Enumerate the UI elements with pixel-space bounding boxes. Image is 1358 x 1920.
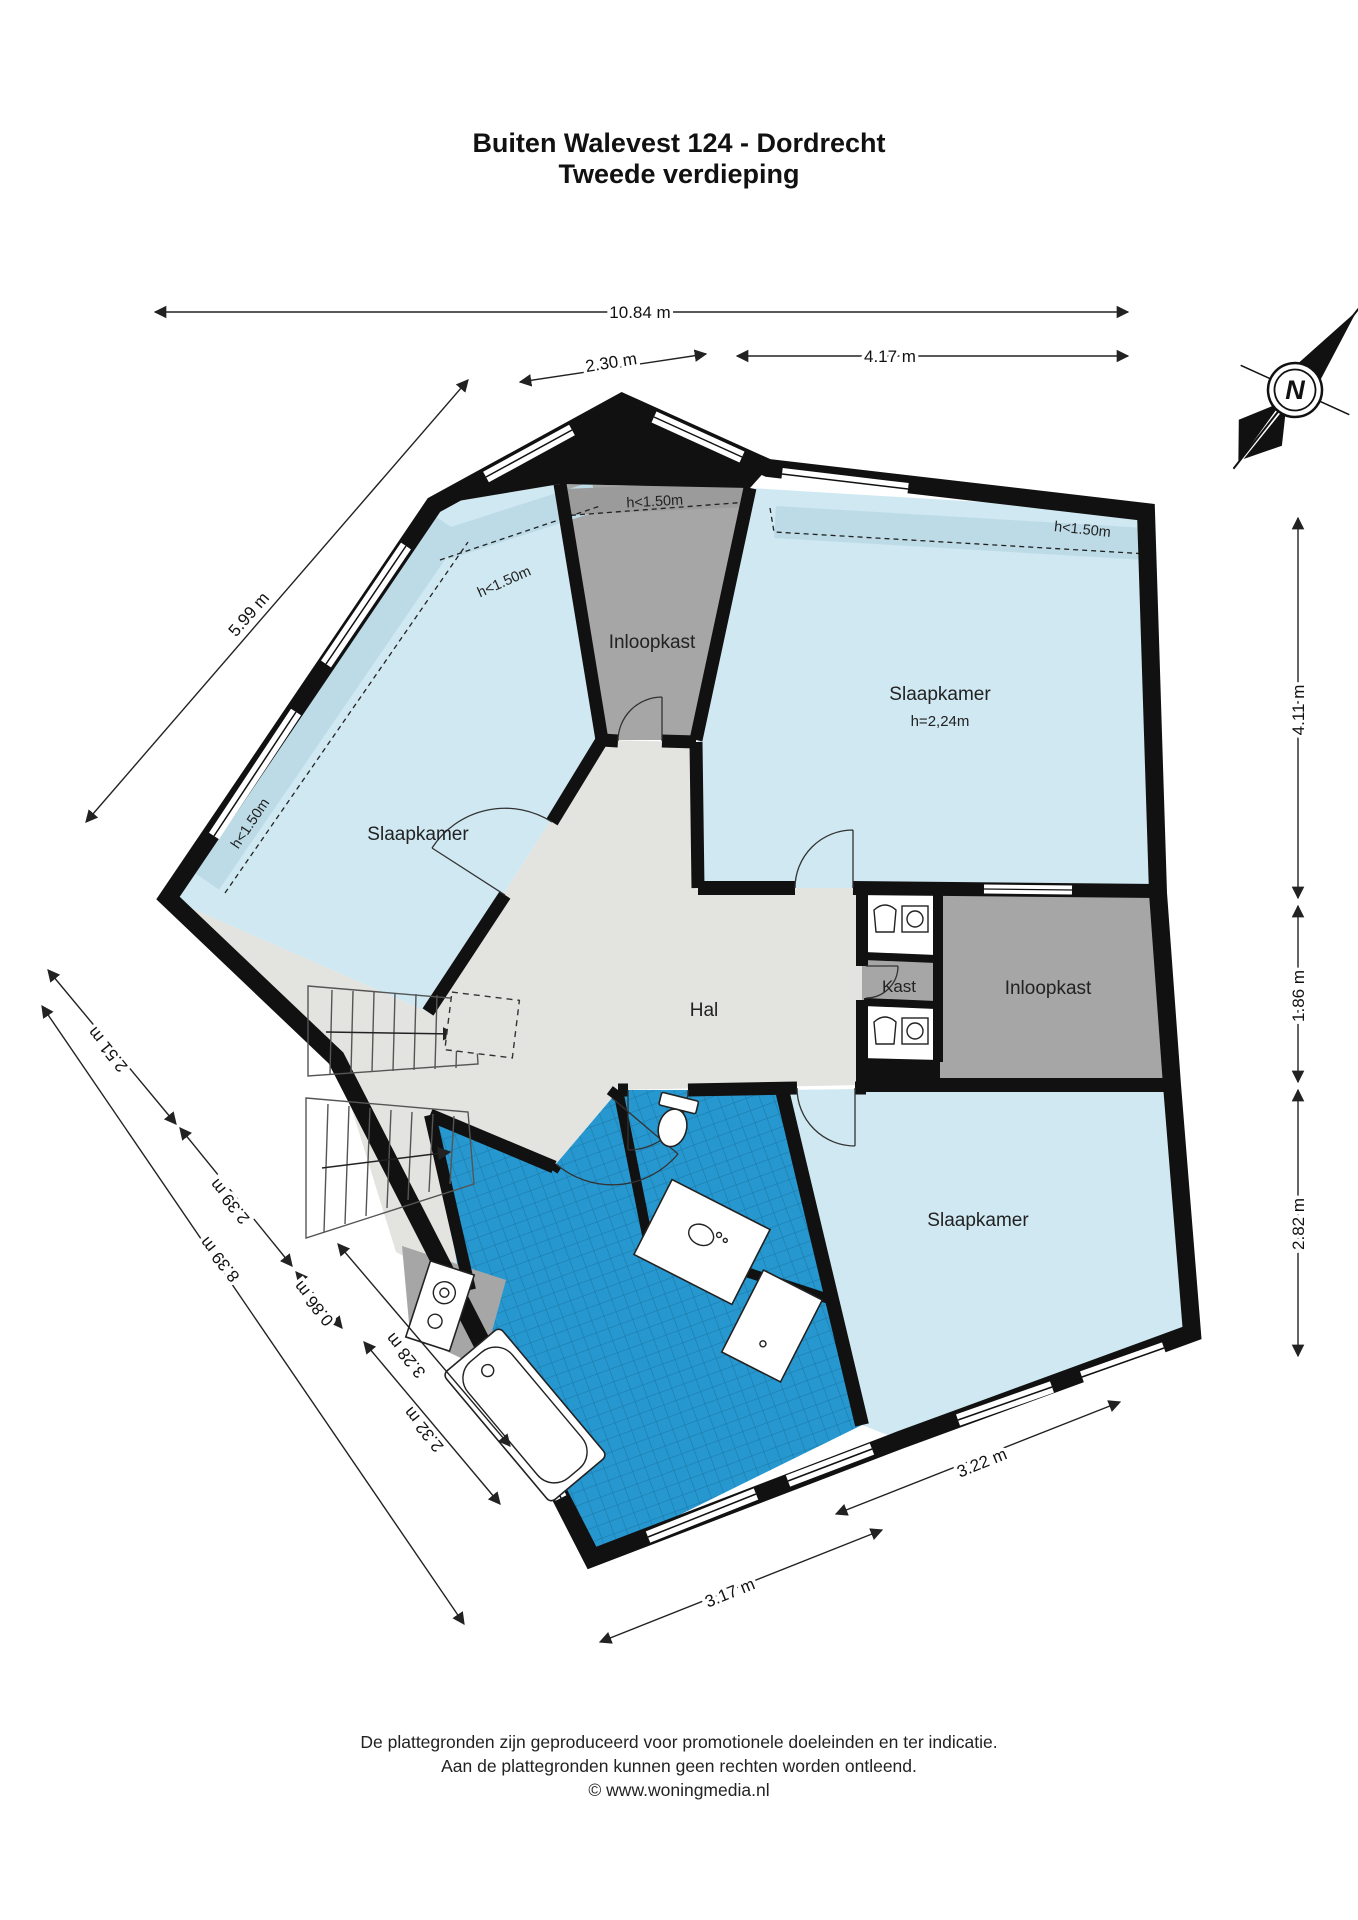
floorplan-page: Buiten Walevest 124 - Dordrecht Tweede v…	[0, 0, 1358, 1920]
dim-right-middle: 1.86 m	[1289, 970, 1308, 1022]
dim-right-bottom: 2.82 m	[1289, 1198, 1308, 1250]
disclaimer-line-1: De plattegronden zijn geproduceerd voor …	[0, 1730, 1358, 1754]
window-interior-closet	[984, 889, 1072, 890]
label-bedroom-top-right: Slaapkamer	[889, 684, 991, 705]
label-bedroom-left: Slaapkamer	[367, 824, 469, 845]
label-hall: Hal	[690, 1000, 719, 1021]
dim-total-width: 10.84 m	[609, 303, 670, 322]
dim-sw-1: 2.51 m	[84, 1023, 131, 1075]
disclaimer-line-2: Aan de plattegronden kunnen geen rechten…	[0, 1754, 1358, 1778]
compass-north-label: N	[1285, 375, 1305, 405]
compass-north-icon: N	[1188, 272, 1358, 505]
dim-sw-5: 2.32 m	[400, 1403, 447, 1455]
dim-bedroom-top-width: 4.17 m	[864, 347, 916, 366]
dim-sw-2: 2.39 m	[206, 1175, 253, 1227]
label-closet: Kast	[882, 977, 916, 996]
dim-bottom-left: 3.17 m	[702, 1574, 757, 1611]
dim-closet-top-width: 2.30 m	[584, 349, 638, 376]
disclaimer-copyright: © www.woningmedia.nl	[0, 1778, 1358, 1802]
disclaimer: De plattegronden zijn geproduceerd voor …	[0, 1730, 1358, 1802]
label-walkin-closet-top: Inloopkast	[609, 632, 696, 653]
label-walkin-closet-right: Inloopkast	[1005, 978, 1092, 999]
floorplan-drawing: 10.84 m 2.30 m 4.17 m 5.99 m 4.11 m 1.86…	[0, 0, 1358, 1920]
dim-sw-total: 8.39 m	[196, 1233, 243, 1285]
label-bedroom-bottom-right: Slaapkamer	[927, 1210, 1029, 1231]
dim-bottom-right: 3.22 m	[954, 1444, 1009, 1481]
dim-right-top: 4.11 m	[1289, 685, 1308, 736]
height-note-top-closet: h<1.50m	[626, 493, 684, 512]
dim-sw-3: 0.86 m	[290, 1277, 337, 1329]
label-bedroom-top-right-height: h=2,24m	[911, 713, 970, 730]
